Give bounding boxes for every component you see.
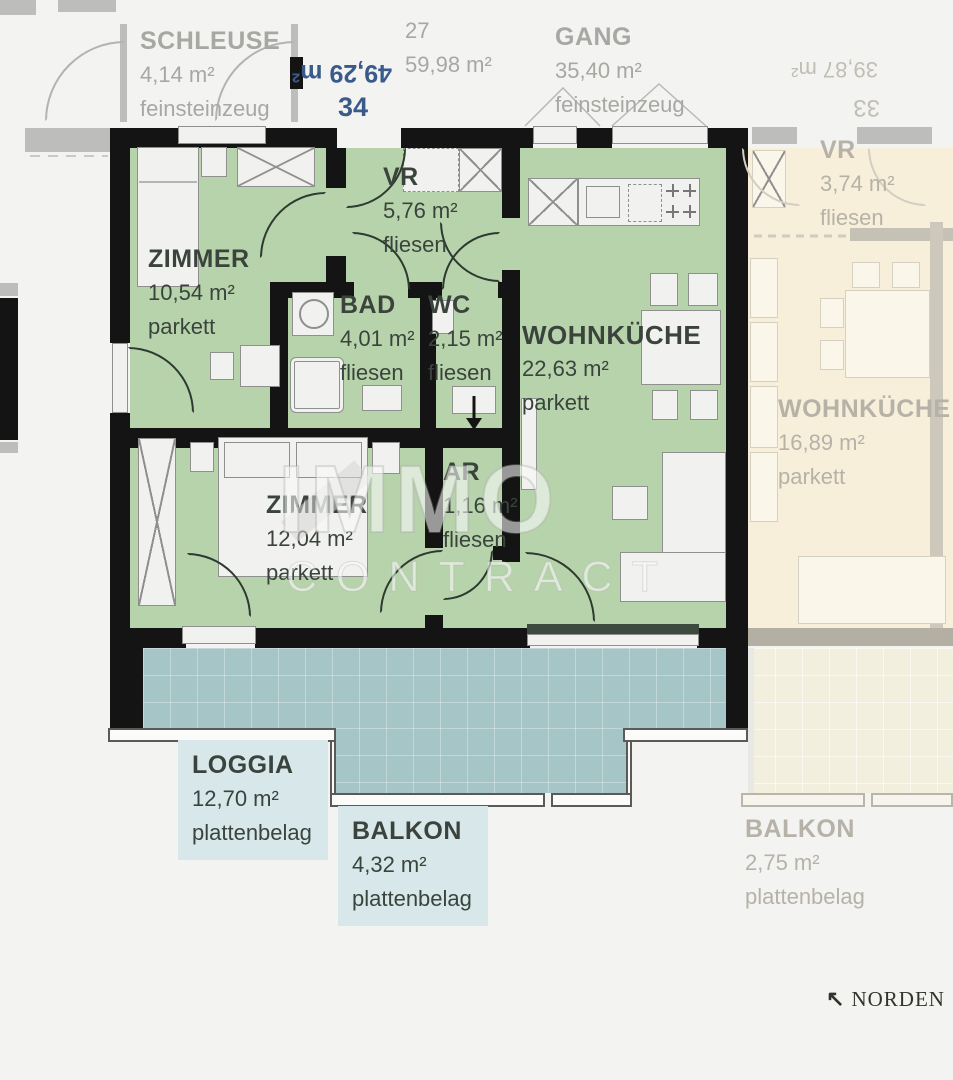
neighbor-sofa <box>798 556 946 624</box>
room-floor: parkett <box>778 460 951 494</box>
wall-segment <box>502 148 520 218</box>
stove-burner <box>666 205 679 218</box>
wardrobe <box>459 148 502 192</box>
bed-line <box>139 181 197 183</box>
room-name: VR <box>820 133 895 167</box>
stove <box>664 180 698 224</box>
loggia-door-sill <box>182 626 256 644</box>
room-area: 10,54 m² <box>148 276 250 310</box>
room-label-neighbor-vr: VR 3,74 m² fliesen <box>820 133 895 235</box>
unit-27-label: 27 59,98 m² <box>405 14 492 82</box>
room-name: BALKON <box>745 812 865 846</box>
unit-number: 27 <box>405 14 492 48</box>
room-area: 35,40 m² <box>555 54 685 88</box>
neighbor-kitchen-unit <box>750 258 778 318</box>
room-floor: fliesen <box>428 356 503 390</box>
room-name: AR <box>443 455 518 489</box>
room-floor: feinsteinzeug <box>140 92 280 126</box>
room-label-ar: AR 1,16 m² fliesen <box>443 455 518 557</box>
neighbor-chair <box>820 298 844 328</box>
room-name: WOHNKÜCHE <box>778 392 951 426</box>
wall-segment <box>708 128 748 148</box>
stove-burner <box>666 184 679 197</box>
loggia-glass-door <box>527 624 699 634</box>
room-area: 1,16 m² <box>443 489 518 523</box>
neighbor-kitchen-unit <box>750 452 778 522</box>
french-door-leaf <box>112 343 128 413</box>
north-indicator: ↖NORDEN <box>826 986 945 1012</box>
wardrobe <box>237 147 315 187</box>
door-swing-arc <box>45 41 125 121</box>
room-floor: parkett <box>266 556 368 590</box>
wall-segment <box>110 628 186 648</box>
wall-segment <box>577 128 612 148</box>
neighbor-wall <box>748 628 953 646</box>
room-name: GANG <box>555 20 685 54</box>
room-name: SCHLEUSE <box>140 24 280 58</box>
room-area: 12,70 m² <box>192 782 312 816</box>
unit-area: 59,98 m² <box>405 48 492 82</box>
floor-plan: SCHLEUSE 4,14 m² feinsteinzeug 27 59,98 … <box>0 0 953 1080</box>
room-name: BAD <box>340 288 415 322</box>
neighbor-railing <box>871 793 953 807</box>
wall-segment <box>110 648 143 728</box>
wall-segment <box>697 628 748 648</box>
room-area: 16,89 m² <box>778 426 951 460</box>
room-floor: parkett <box>522 386 701 420</box>
room-area: 22,63 m² <box>522 352 701 386</box>
room-area: 4,32 m² <box>352 848 472 882</box>
neighbor-chair <box>892 262 920 288</box>
dishwasher <box>628 184 662 222</box>
chair <box>650 273 678 306</box>
wall-segment <box>726 148 748 648</box>
room-label-wc: WC 2,15 m² fliesen <box>428 288 503 390</box>
apartment-area-rotated: 49,29 m² <box>296 56 392 90</box>
room-floor: parkett <box>148 310 250 344</box>
room-floor: fliesen <box>340 356 415 390</box>
chair <box>210 352 234 380</box>
sofa <box>620 552 726 602</box>
room-area: 4,01 m² <box>340 322 415 356</box>
railing <box>330 740 336 795</box>
chair <box>688 273 718 306</box>
neighbor-number-rotated: 33 <box>840 90 880 124</box>
pillow <box>296 442 362 478</box>
wall-segment <box>326 148 346 188</box>
loggia-floor <box>143 648 726 728</box>
room-label-balkon: BALKON 4,32 m² plattenbelag <box>338 806 488 926</box>
north-arrow-icon: ↖ <box>826 986 845 1011</box>
washing-machine-drum <box>299 299 329 329</box>
room-label-neighbor-wohnkueche: WOHNKÜCHE 16,89 m² parkett <box>778 392 951 494</box>
wardrobe <box>138 438 176 606</box>
neighbor-chair <box>820 340 844 370</box>
neighbor-area-rotated: 39,87 m² <box>752 52 878 86</box>
room-area: 5,76 m² <box>383 194 458 228</box>
room-area: 2,15 m² <box>428 322 503 356</box>
room-label-neighbor-balkon: BALKON 2,75 m² plattenbelag <box>745 812 865 914</box>
sink <box>586 186 620 218</box>
window <box>533 126 577 144</box>
room-label-vr: VR 5,76 m² fliesen <box>383 160 458 262</box>
room-floor: fliesen <box>820 201 895 235</box>
wall-segment <box>110 148 130 343</box>
room-name: ZIMMER <box>266 488 368 522</box>
neighbor-kitchen-unit <box>750 322 778 382</box>
room-floor: feinsteinzeug <box>555 88 685 122</box>
room-name: WOHNKÜCHE <box>522 318 701 352</box>
room-name: WC <box>428 288 503 322</box>
wall-segment <box>25 128 110 152</box>
toilet <box>452 386 496 414</box>
wall-segment <box>425 448 443 548</box>
wall-segment <box>0 283 18 296</box>
room-floor: plattenbelag <box>745 880 865 914</box>
room-name: ZIMMER <box>148 242 250 276</box>
wall-segment <box>0 298 18 440</box>
loggia-divider <box>748 648 754 793</box>
neighbor-kitchen-unit <box>750 386 778 448</box>
neighbor-railing <box>741 793 865 807</box>
room-label-wohnkueche: WOHNKÜCHE 22,63 m² parkett <box>522 318 701 420</box>
room-floor: fliesen <box>383 228 458 262</box>
room-area: 3,74 m² <box>820 167 895 201</box>
balkon-floor <box>332 728 630 793</box>
room-area: 12,04 m² <box>266 522 368 556</box>
wall-segment <box>0 442 18 453</box>
window <box>612 126 708 144</box>
room-name: LOGGIA <box>192 748 312 782</box>
wall-segment <box>502 270 520 428</box>
room-name: BALKON <box>352 814 472 848</box>
north-label: NORDEN <box>851 987 945 1011</box>
apartment-number: 34 <box>338 90 368 124</box>
wall-segment <box>58 0 116 12</box>
wall-segment <box>110 413 130 648</box>
neighbor-table <box>845 290 930 378</box>
room-name: VR <box>383 160 458 194</box>
wall-segment <box>401 128 533 148</box>
neighbor-chair <box>852 262 880 288</box>
railing <box>626 740 632 795</box>
shower <box>290 357 344 413</box>
room-label-bad: BAD 4,01 m² fliesen <box>340 288 415 390</box>
railing <box>551 793 632 807</box>
railing <box>330 793 545 807</box>
room-floor: fliesen <box>443 523 518 557</box>
room-area: 4,14 m² <box>140 58 280 92</box>
room-floor: plattenbelag <box>352 882 472 916</box>
room-label-zimmer1: ZIMMER 10,54 m² parkett <box>148 242 250 344</box>
wall-segment <box>425 615 443 628</box>
room-label-loggia: LOGGIA 12,70 m² plattenbelag <box>178 740 328 860</box>
nightstand <box>201 147 227 177</box>
room-label-zimmer2: ZIMMER 12,04 m² parkett <box>266 488 368 590</box>
railing <box>623 728 748 742</box>
loggia-door-sill <box>527 634 699 646</box>
wall-segment <box>255 628 530 648</box>
wall-segment <box>726 648 748 728</box>
room-label-schleuse: SCHLEUSE 4,14 m² feinsteinzeug <box>140 24 280 126</box>
neighbor-loggia-floor <box>748 648 953 793</box>
room-area: 2,75 m² <box>745 846 865 880</box>
stove-burner <box>683 184 696 197</box>
room-label-gang: GANG 35,40 m² feinsteinzeug <box>555 20 685 122</box>
nightstand <box>190 442 214 472</box>
window <box>178 126 266 144</box>
stove-burner <box>683 205 696 218</box>
coffee-table <box>612 486 648 520</box>
fridge <box>528 178 578 226</box>
wall-segment <box>0 0 36 15</box>
room-floor: plattenbelag <box>192 816 312 850</box>
neighbor-door <box>752 127 797 144</box>
desk <box>240 345 280 387</box>
nightstand <box>372 442 400 474</box>
pillow <box>224 442 290 478</box>
